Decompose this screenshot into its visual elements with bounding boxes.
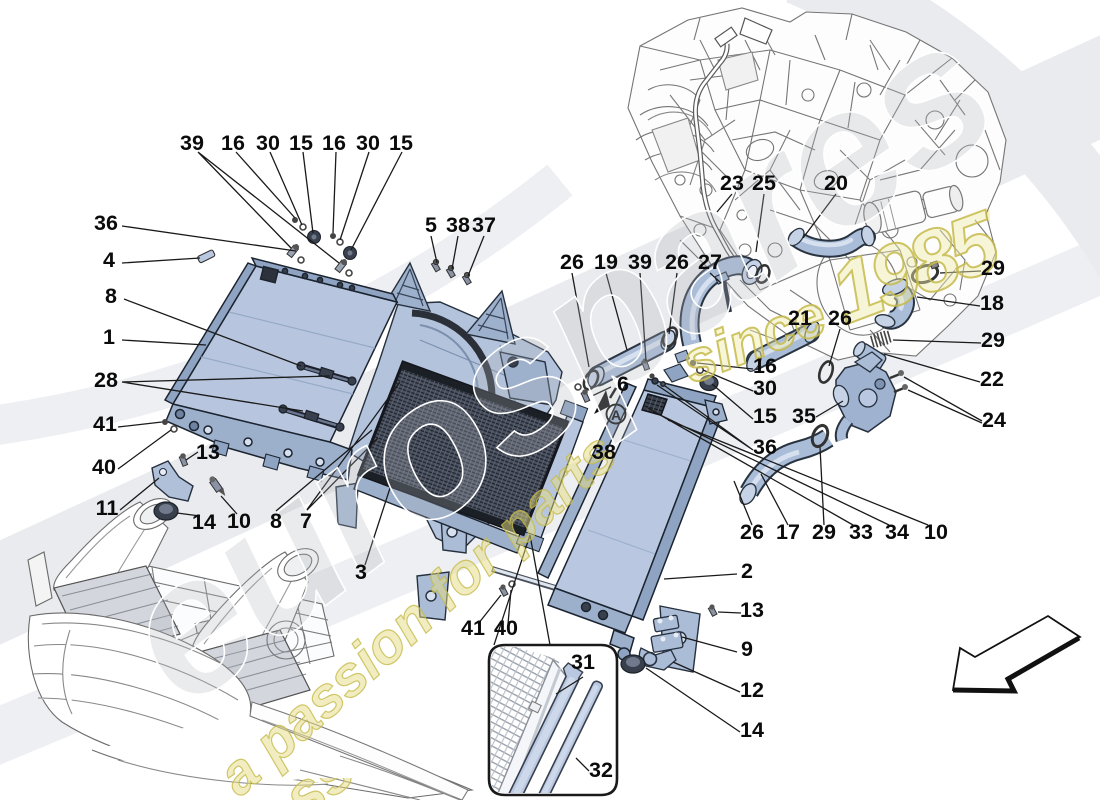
svg-text:13: 13 bbox=[196, 440, 220, 464]
svg-text:26: 26 bbox=[828, 306, 852, 330]
svg-text:10: 10 bbox=[227, 509, 251, 533]
svg-text:29: 29 bbox=[981, 256, 1005, 280]
svg-text:38: 38 bbox=[592, 440, 616, 464]
svg-text:8: 8 bbox=[270, 509, 282, 533]
svg-text:33: 33 bbox=[849, 520, 873, 544]
svg-text:19: 19 bbox=[594, 250, 618, 274]
svg-text:18: 18 bbox=[980, 291, 1004, 315]
svg-text:17: 17 bbox=[776, 520, 800, 544]
svg-text:16: 16 bbox=[753, 354, 777, 378]
svg-text:35: 35 bbox=[792, 404, 816, 428]
svg-text:13: 13 bbox=[740, 598, 764, 622]
svg-text:8: 8 bbox=[105, 284, 117, 308]
svg-text:41: 41 bbox=[93, 412, 117, 436]
svg-text:6: 6 bbox=[617, 372, 629, 396]
svg-text:38: 38 bbox=[446, 213, 470, 237]
svg-text:25: 25 bbox=[752, 171, 776, 195]
svg-text:26: 26 bbox=[740, 520, 764, 544]
svg-text:39: 39 bbox=[628, 250, 652, 274]
svg-text:4: 4 bbox=[103, 248, 115, 272]
svg-text:11: 11 bbox=[96, 496, 119, 520]
svg-text:40: 40 bbox=[92, 455, 116, 479]
svg-text:3: 3 bbox=[355, 560, 367, 584]
svg-text:40: 40 bbox=[494, 616, 518, 640]
svg-text:27: 27 bbox=[698, 250, 722, 274]
svg-text:34: 34 bbox=[885, 520, 909, 544]
svg-text:5: 5 bbox=[425, 213, 437, 237]
svg-text:29: 29 bbox=[981, 328, 1005, 352]
svg-text:20: 20 bbox=[824, 171, 848, 195]
svg-text:29: 29 bbox=[812, 520, 836, 544]
svg-text:26: 26 bbox=[560, 250, 584, 274]
svg-text:36: 36 bbox=[94, 211, 118, 235]
svg-text:30: 30 bbox=[356, 131, 380, 155]
svg-text:21: 21 bbox=[788, 306, 812, 330]
svg-text:14: 14 bbox=[740, 718, 764, 742]
svg-text:9: 9 bbox=[741, 637, 753, 661]
svg-text:23: 23 bbox=[720, 171, 744, 195]
svg-text:24: 24 bbox=[982, 408, 1006, 432]
svg-text:1: 1 bbox=[103, 325, 115, 349]
svg-text:14: 14 bbox=[192, 510, 216, 534]
svg-text:15: 15 bbox=[389, 131, 413, 155]
svg-text:36: 36 bbox=[753, 435, 777, 459]
svg-text:12: 12 bbox=[740, 678, 764, 702]
svg-text:16: 16 bbox=[221, 131, 245, 155]
svg-text:15: 15 bbox=[753, 404, 777, 428]
svg-text:2: 2 bbox=[741, 559, 753, 583]
svg-text:22: 22 bbox=[980, 367, 1004, 391]
svg-text:15: 15 bbox=[289, 131, 313, 155]
svg-text:26: 26 bbox=[665, 250, 689, 274]
svg-text:39: 39 bbox=[180, 131, 204, 155]
svg-text:16: 16 bbox=[322, 131, 346, 155]
svg-text:30: 30 bbox=[256, 131, 280, 155]
svg-text:41: 41 bbox=[461, 616, 485, 640]
svg-text:37: 37 bbox=[472, 213, 496, 237]
svg-text:31: 31 bbox=[571, 650, 595, 674]
svg-text:28: 28 bbox=[94, 368, 118, 392]
svg-text:10: 10 bbox=[924, 520, 948, 544]
svg-text:30: 30 bbox=[753, 376, 777, 400]
svg-text:32: 32 bbox=[589, 758, 613, 782]
svg-text:7: 7 bbox=[300, 509, 312, 533]
